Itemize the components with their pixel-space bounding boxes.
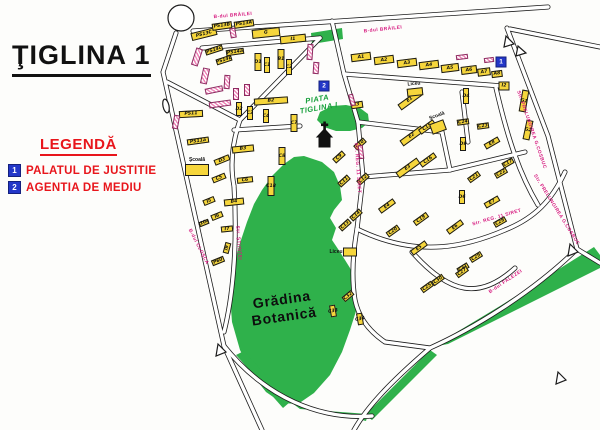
building-C2: C2 bbox=[286, 59, 292, 75]
building-pink-block bbox=[224, 75, 231, 89]
building-C18: C18 bbox=[268, 176, 275, 196]
building-I7: I7 bbox=[221, 225, 234, 232]
building-C7: C7 bbox=[291, 114, 298, 132]
building-pink-block bbox=[313, 62, 320, 74]
legend-label-2: AGENTIA DE MEDIU bbox=[26, 182, 142, 194]
roundabout bbox=[168, 5, 194, 31]
legend-heading: LEGENDĂ bbox=[40, 136, 117, 156]
building-pink-block bbox=[233, 88, 239, 100]
building-D6: D6 bbox=[459, 190, 465, 204]
map-marker-2: 2 bbox=[319, 81, 330, 92]
legend-label-1: PALATUL DE JUSTITIE bbox=[26, 165, 156, 177]
island-triangle-tr2 bbox=[516, 46, 526, 56]
building-B1: B1 bbox=[278, 49, 285, 69]
building-D2: D2 bbox=[236, 102, 242, 116]
legend-item-2: 2 AGENTIA DE MEDIU bbox=[8, 181, 142, 194]
building-D9: D9 bbox=[460, 137, 466, 151]
road-network bbox=[163, 7, 600, 430]
building-C4: C4 bbox=[263, 109, 269, 123]
building-A7: A7 bbox=[477, 67, 491, 77]
building-pink-block bbox=[244, 84, 250, 96]
legend-marker-1: 1 bbox=[8, 164, 21, 177]
map-marker-1: 1 bbox=[496, 57, 507, 68]
building-C1: C1 bbox=[264, 57, 270, 73]
building-block bbox=[185, 164, 209, 176]
building-block bbox=[407, 87, 424, 97]
page-title: ŢIGLINA 1 bbox=[12, 40, 151, 77]
landmark-label: Liceu bbox=[329, 249, 342, 255]
building-D1: D1 bbox=[255, 53, 262, 71]
landmark-label: Liceu bbox=[407, 80, 421, 87]
map-page: ŢIGLINA 1 LEGENDĂ 1 PALATUL DE JUSTITIE … bbox=[0, 0, 600, 430]
building-I2: I2 bbox=[499, 82, 510, 91]
building-D4: D4 bbox=[463, 88, 469, 104]
island-triangle-se bbox=[556, 372, 566, 384]
legend-item-1: 1 PALATUL DE JUSTITIE bbox=[8, 164, 156, 177]
building-pink-block bbox=[306, 44, 313, 60]
building-A8: A8 bbox=[491, 70, 503, 78]
green-strip-s2 bbox=[365, 350, 437, 420]
building-C3: C3 bbox=[247, 106, 253, 120]
landmark-label: Şcoală bbox=[189, 157, 205, 163]
building-block bbox=[343, 248, 357, 257]
building-C8: C8 bbox=[279, 147, 286, 165]
legend-marker-2: 2 bbox=[8, 181, 21, 194]
building-PS11: PS11 bbox=[179, 110, 203, 118]
